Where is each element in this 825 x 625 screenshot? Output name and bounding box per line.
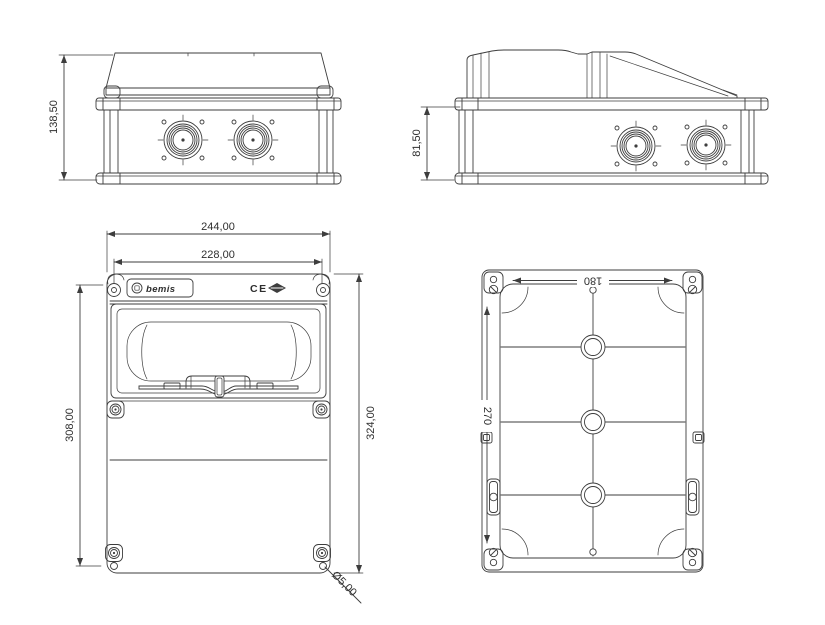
knockout-left <box>158 115 208 165</box>
dim-text-overall-height: 324,00 <box>365 406 377 440</box>
side-bottom-band <box>96 173 341 184</box>
dim-inner-width: 180 <box>513 274 672 287</box>
brand-text: bemis <box>146 284 175 295</box>
dim-text-side-height: 138,50 <box>48 100 60 134</box>
view-side: 138,50 <box>48 53 341 184</box>
drawing-canvas: 138,50 81,50 <box>0 0 825 625</box>
dim-overall-width: 244,00 <box>107 221 330 272</box>
profile-bottom-band <box>455 173 768 184</box>
side-body <box>104 110 333 173</box>
screw-bottom-left <box>106 545 123 562</box>
dim-text-profile-height: 81,50 <box>411 129 423 157</box>
screw-mid-left <box>107 401 124 418</box>
dim-text-mount-height: 308,00 <box>64 408 76 442</box>
technical-drawing-page: 138,50 81,50 <box>0 0 825 625</box>
square-tab-left <box>481 432 492 443</box>
dim-mount-height: 308,00 <box>64 285 103 566</box>
corner-hole-left <box>111 563 118 570</box>
dim-text-corner-hole: Ø5,00 <box>329 569 359 599</box>
front-outline <box>107 274 330 573</box>
dim-text-overall-width: 244,00 <box>201 221 235 233</box>
view-back: 180 270 <box>480 270 704 572</box>
view-front: bemis CE <box>64 221 377 603</box>
front-latch <box>139 376 298 397</box>
dim-overall-height: 324,00 <box>334 274 377 573</box>
dim-corner-hole: Ø5,00 <box>325 567 361 603</box>
boss-middle <box>581 410 605 434</box>
knockout-right <box>681 120 731 170</box>
brand-icon <box>132 283 142 293</box>
ear-top-left <box>484 272 503 294</box>
dim-text-mount-width: 228,00 <box>201 249 235 261</box>
lid-screw-top-right <box>317 284 330 297</box>
corner-hole-right <box>320 563 327 570</box>
square-tab-right <box>693 432 704 443</box>
latch-pin <box>215 376 224 397</box>
ear-bottom-left <box>484 548 503 570</box>
profile-rim-band <box>455 98 768 110</box>
dim-text-inner-height: 270 <box>481 407 493 425</box>
lid-screw-top-left <box>108 284 121 297</box>
screw-mid-right <box>313 401 330 418</box>
dim-profile-height: 81,50 <box>411 107 460 180</box>
slot-tab-left <box>487 479 500 515</box>
profile-lid <box>467 50 737 98</box>
ce-mark-text: CE <box>250 283 268 295</box>
knockout-right <box>228 115 278 165</box>
screw-bottom-right <box>314 545 331 562</box>
dim-side-height: 138,50 <box>48 55 113 180</box>
ear-top-right <box>683 272 702 294</box>
boss-top <box>581 335 605 359</box>
boss-bottom <box>581 483 605 507</box>
certification-marks: CE <box>250 283 286 295</box>
front-top-band: bemis CE <box>108 274 330 304</box>
dim-text-inner-width: 180 <box>584 275 602 287</box>
side-lid <box>104 53 333 98</box>
ear-bottom-right <box>683 548 702 570</box>
slot-tab-right <box>686 479 699 515</box>
side-rim-band <box>96 98 341 110</box>
knockout-left <box>611 121 661 171</box>
brand-plate: bemis <box>127 279 193 297</box>
dim-mount-width: 228,00 <box>114 249 322 283</box>
view-profile: 81,50 <box>411 50 768 184</box>
